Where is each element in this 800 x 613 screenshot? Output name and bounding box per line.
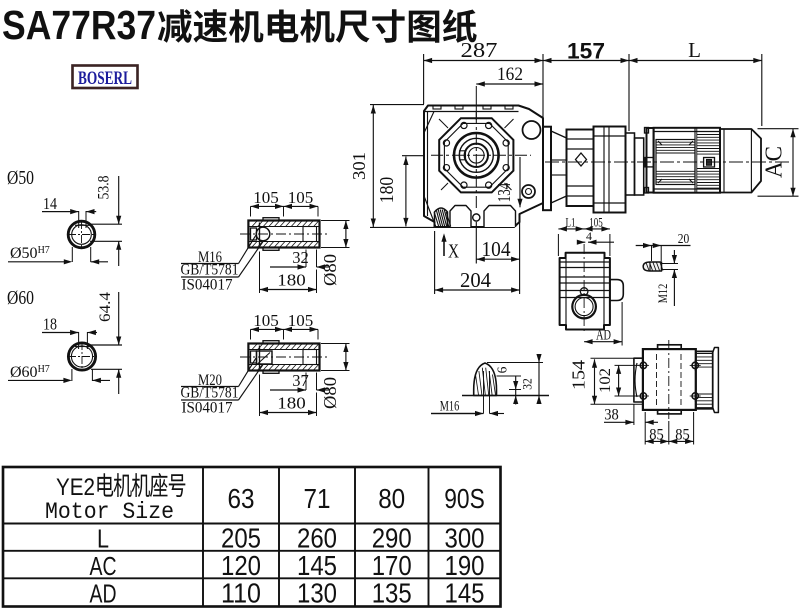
svg-text:205: 205 — [221, 523, 261, 554]
svg-text:90S: 90S — [444, 483, 485, 514]
svg-text:AD: AD — [596, 328, 611, 344]
svg-text:Ø50: Ø50 — [7, 167, 34, 189]
svg-text:105: 105 — [253, 188, 279, 207]
svg-text:120: 120 — [221, 550, 261, 581]
svg-text:X: X — [448, 241, 459, 263]
svg-text:154: 154 — [569, 360, 589, 390]
svg-text:134: 134 — [494, 183, 514, 203]
svg-text:85: 85 — [649, 427, 664, 444]
svg-text:85: 85 — [675, 427, 690, 444]
svg-text:4: 4 — [586, 229, 592, 243]
svg-text:145: 145 — [445, 578, 485, 609]
svg-text:170: 170 — [372, 550, 412, 581]
svg-text:18: 18 — [43, 315, 57, 334]
svg-text:105: 105 — [288, 311, 314, 330]
svg-text:Ø80: Ø80 — [320, 254, 340, 286]
svg-text:Ø80: Ø80 — [320, 377, 340, 409]
svg-text:53.8: 53.8 — [96, 176, 113, 200]
svg-text:71: 71 — [304, 483, 331, 514]
svg-text:162: 162 — [497, 64, 523, 85]
svg-text:290: 290 — [372, 523, 412, 554]
svg-text:32: 32 — [292, 248, 309, 267]
svg-text:20: 20 — [678, 232, 690, 247]
svg-text:14: 14 — [43, 194, 57, 213]
svg-text:157: 157 — [567, 39, 605, 64]
svg-text:301: 301 — [349, 152, 369, 180]
svg-text:AC: AC — [90, 551, 117, 581]
svg-text:BOSERL: BOSERL — [78, 69, 132, 89]
svg-text:180: 180 — [277, 394, 306, 413]
svg-text:104: 104 — [482, 237, 511, 261]
svg-text:287: 287 — [461, 38, 498, 62]
svg-text:105: 105 — [253, 311, 279, 330]
svg-text:L1: L1 — [566, 215, 576, 230]
svg-text:AD: AD — [90, 579, 117, 609]
svg-text:IS04017: IS04017 — [182, 400, 233, 417]
svg-text:32: 32 — [521, 378, 535, 390]
svg-text:6: 6 — [495, 366, 510, 373]
svg-text:37: 37 — [292, 371, 309, 390]
svg-text:190: 190 — [445, 550, 485, 581]
svg-text:L: L — [688, 38, 701, 62]
svg-text:204: 204 — [460, 268, 491, 292]
svg-text:105: 105 — [288, 188, 314, 207]
svg-text:63: 63 — [228, 483, 255, 514]
svg-text:L: L — [97, 524, 109, 554]
svg-text:300: 300 — [445, 523, 485, 554]
svg-text:180: 180 — [277, 271, 306, 290]
svg-text:IS04017: IS04017 — [182, 277, 233, 294]
svg-text:AC: AC — [762, 146, 788, 178]
svg-text:110: 110 — [221, 578, 261, 609]
svg-text:M16: M16 — [440, 399, 460, 415]
svg-text:Ø60: Ø60 — [7, 287, 34, 309]
svg-text:260: 260 — [297, 523, 337, 554]
svg-text:80: 80 — [378, 483, 405, 514]
svg-text:145: 145 — [297, 550, 337, 581]
svg-text:105: 105 — [589, 216, 603, 230]
svg-text:135: 135 — [372, 578, 412, 609]
svg-text:130: 130 — [297, 578, 337, 609]
svg-text:M12: M12 — [656, 284, 670, 304]
svg-text:38: 38 — [604, 407, 619, 424]
svg-text:64.4: 64.4 — [97, 292, 114, 322]
svg-text:102: 102 — [597, 368, 614, 393]
svg-text:YE2: YE2 — [56, 474, 95, 501]
svg-text:Motor Size: Motor Size — [45, 499, 174, 525]
svg-text:SA77R37: SA77R37 — [2, 2, 156, 48]
svg-text:180: 180 — [376, 177, 398, 204]
